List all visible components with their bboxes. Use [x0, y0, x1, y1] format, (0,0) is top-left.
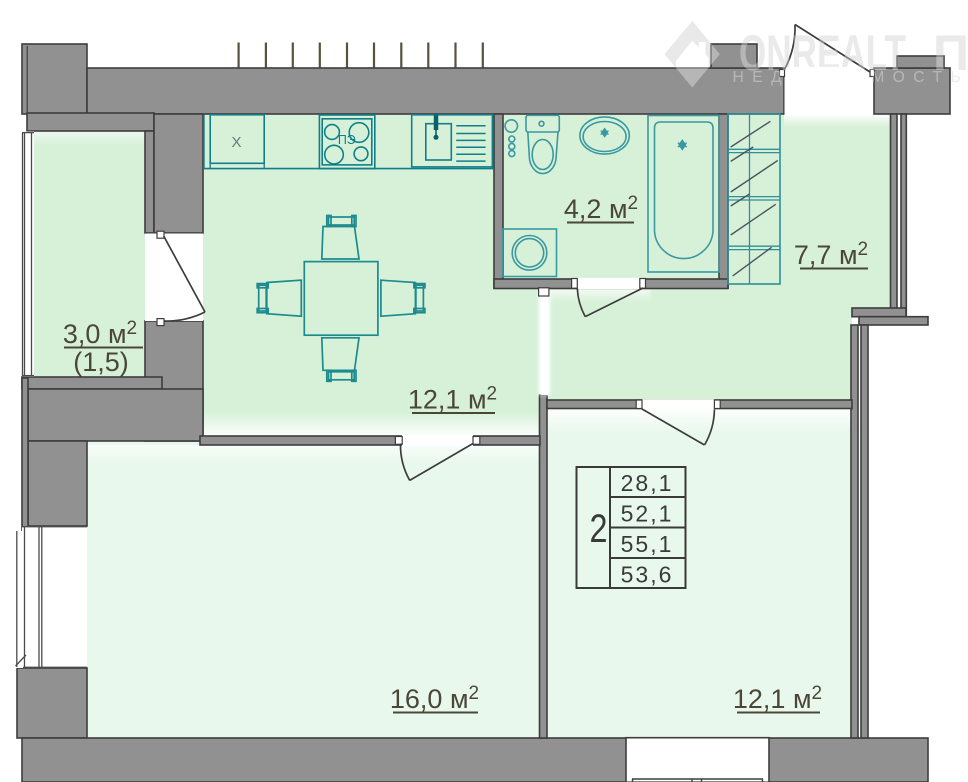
svg-text:53,6: 53,6: [621, 562, 674, 588]
svg-text:4,2 м2: 4,2 м2: [564, 193, 638, 224]
svg-text:52,1: 52,1: [621, 501, 674, 527]
svg-text:55,1: 55,1: [621, 531, 674, 557]
svg-text:12,1 м2: 12,1 м2: [408, 384, 497, 415]
svg-text:28,1: 28,1: [621, 470, 674, 496]
svg-text:12,1 м2: 12,1 м2: [733, 683, 822, 714]
svg-text:7,7 м2: 7,7 м2: [794, 239, 868, 270]
svg-text:16,0 м2: 16,0 м2: [390, 683, 479, 714]
svg-text:ПЭ: ПЭ: [338, 133, 356, 147]
svg-text:НЕДВИЖИМОСТЬ: НЕДВИЖИМОСТЬ: [733, 69, 968, 86]
svg-text:(1,5): (1,5): [73, 347, 129, 377]
svg-text:X: X: [231, 134, 241, 151]
svg-text:2: 2: [590, 507, 608, 551]
svg-text:3,0 м2: 3,0 м2: [63, 318, 137, 349]
